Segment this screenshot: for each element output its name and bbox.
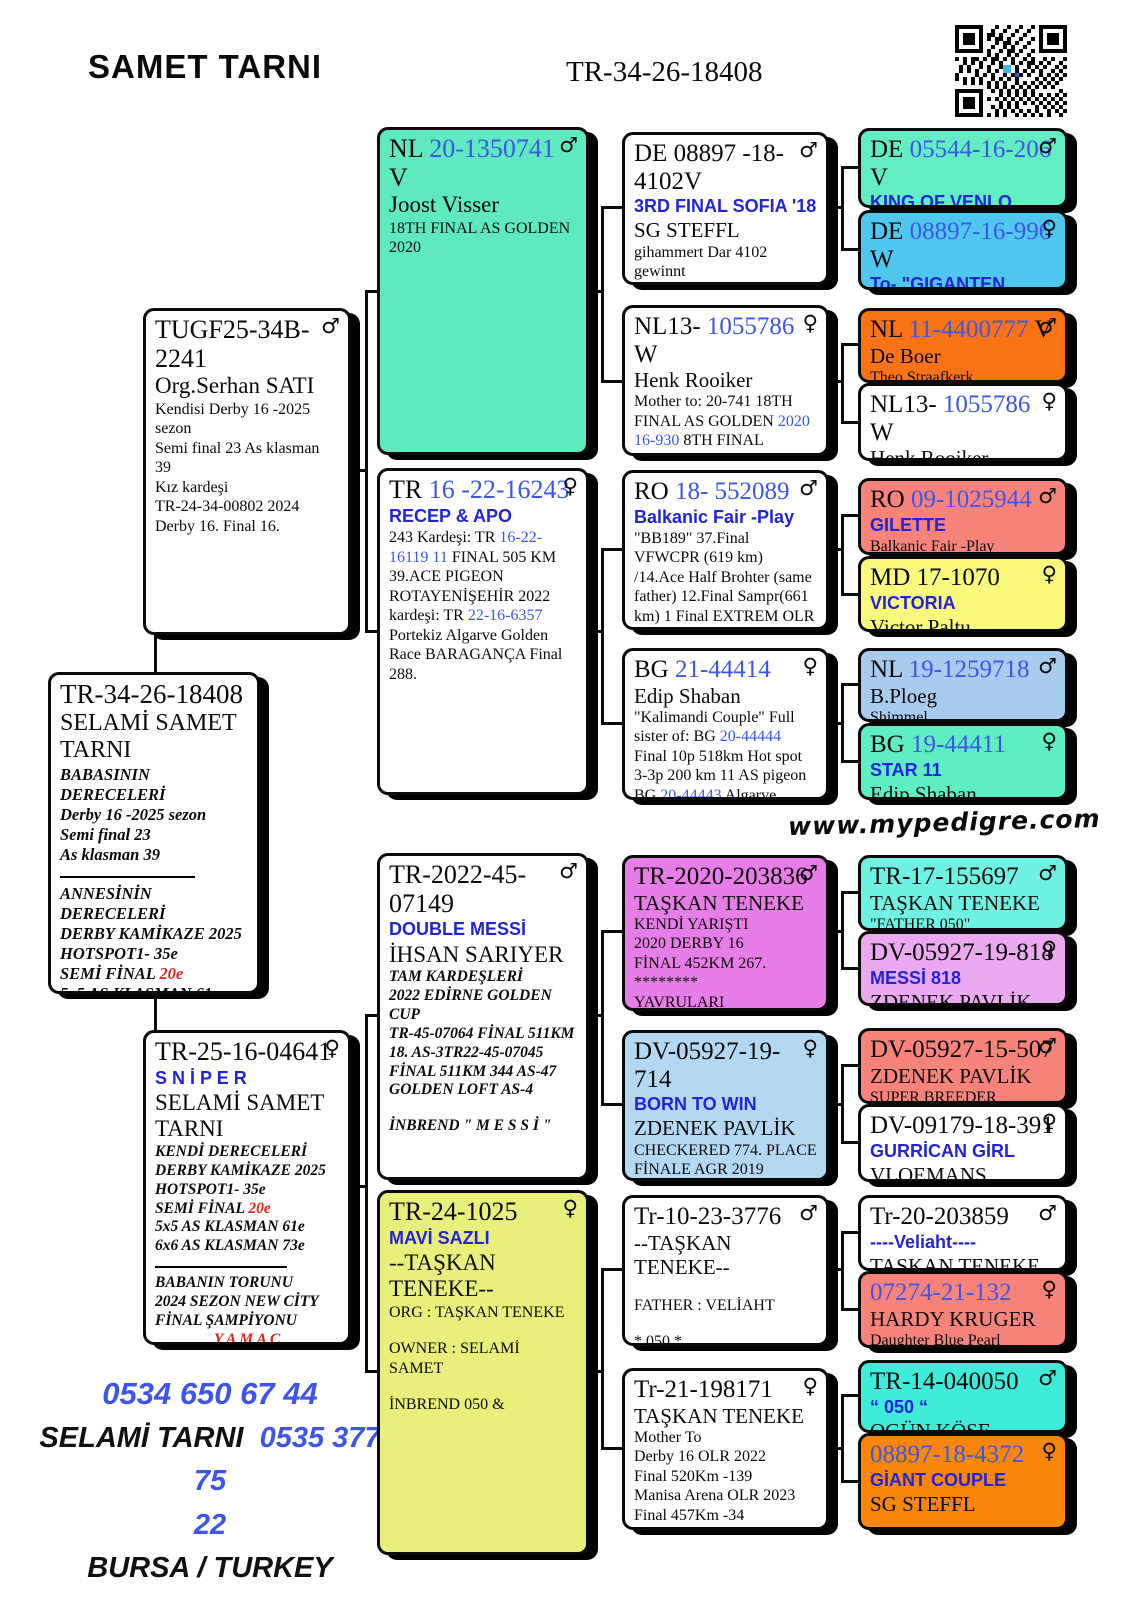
pedigree-box-de996: ♀DE 08897-16-996WTo- "GIGANTEN [858, 210, 1068, 290]
box-line: TR-24-34-00802 2024 [155, 497, 339, 517]
box-line: Mother to: 20-741 18TH FINAL AS GOLDEN 2… [634, 392, 817, 451]
box-line: KENDİ DERECELERİ [155, 1143, 339, 1162]
box-line: YAVRULARI [634, 993, 817, 1011]
male-icon: ♂ [799, 861, 818, 885]
connector-line [601, 206, 604, 383]
box-line: NL13- 1055786 [634, 313, 817, 341]
connector-line [844, 421, 858, 424]
box-line: 18TH FINAL AS GOLDEN [389, 219, 577, 239]
connector-line [844, 1308, 858, 1311]
pedigree-box-tr17: ♂TR-17-155697TAŞKAN TENEKE"FATHER 050" [858, 855, 1068, 931]
box-line: Y A M A Ç [155, 1331, 339, 1345]
female-icon: ♀ [563, 1196, 578, 1220]
box-line: TR-2020-203836 [634, 863, 817, 891]
box-line: SISTER TO: ANNE 51. [634, 1180, 817, 1181]
box-line: SEMİ FİNAL 20e [60, 964, 248, 984]
box-line: Tr-10-23-3776 [634, 1203, 817, 1231]
box-line: Org.Serhan SATI [155, 373, 339, 399]
male-icon: ♂ [799, 476, 818, 500]
box-line: * 050 * [634, 1332, 817, 1346]
box-line [389, 1378, 577, 1395]
box-line: "Kalimandi Couple" Full sister of: BG 20… [634, 708, 817, 800]
connector-line [841, 514, 844, 596]
box-line: As klasman 39 [60, 845, 248, 865]
connector-line [368, 1014, 377, 1017]
box-line: FİNAL ŞAMPİYONU [155, 1312, 339, 1331]
connector-line [844, 683, 858, 686]
box-line: TAŞKAN TENEKE [634, 1404, 817, 1428]
male-icon: ♂ [799, 138, 818, 162]
connector-line [844, 1480, 858, 1483]
connector-line [601, 548, 604, 725]
box-line: gihammert Dar 4102 gewinnt [634, 243, 817, 282]
box-line: MD 17-1070 [870, 564, 1056, 592]
box-line: CUP [389, 1006, 577, 1025]
pedigree-box-tr10: ♂Tr-10-23-3776--TAŞKANTENEKE--FATHER : V… [622, 1195, 829, 1346]
male-icon: ♂ [1038, 1201, 1057, 1225]
box-line: NL13- 1055786 [870, 391, 1056, 419]
connector-line [844, 514, 858, 517]
box-line: RECEP & APO [389, 505, 577, 528]
box-line: Manisa Arena OLR 2023 [634, 1486, 817, 1506]
box-line [155, 1266, 287, 1268]
box-line: TR-34-26-18408 [60, 680, 248, 710]
box-line: ******** [634, 973, 817, 993]
box-line: Kız kardeşi [155, 478, 339, 498]
box-line: DE 08897 -18- [634, 140, 817, 168]
box-line: MAVİ SAZLI [389, 1227, 577, 1250]
box-line: 2020 DERBY 16 [634, 934, 817, 954]
box-line: “ 050 “ [870, 1396, 1056, 1419]
connector-line [844, 166, 858, 169]
box-line: DERECELERİ [60, 904, 248, 924]
box-line: ----Veliaht---- [870, 1231, 1056, 1254]
box-line: SG STEFFL [870, 1492, 1056, 1516]
box-line: "BB189" 37.Final VFWCPR (619 km) /14.Ace… [634, 529, 817, 630]
box-line: SG STEFFL [634, 218, 817, 242]
box-line: ZDENEK PAVLİK [634, 1116, 817, 1140]
phone-number-2-cont: 22 [25, 1504, 395, 1548]
female-icon: ♀ [1042, 389, 1057, 413]
box-line: DV-05927-15-507 [870, 1036, 1056, 1064]
box-line: TR-17-155697 [870, 863, 1056, 891]
male-icon: ♂ [1038, 654, 1057, 678]
box-line: Derby 16. Final 16. [155, 517, 339, 537]
box-line: TR 16 -22-16243 [389, 476, 577, 505]
connector-line [352, 1185, 365, 1188]
female-icon: ♀ [1042, 1110, 1057, 1134]
box-line: HARDY KRUGER [870, 1307, 1056, 1331]
box-line: STAR 11 [870, 759, 1056, 782]
pedigree-page: SAMET TARNI TR-34-26-18408 www.mypedigre… [0, 0, 1131, 1600]
location-text: BURSA / TURKEY [25, 1547, 395, 1591]
phone-number-1: 0534 650 67 44 [25, 1372, 395, 1417]
pedigree-box-nl19: ♂NL 19-1259718B.PloegShimmel [858, 648, 1068, 722]
connector-line [604, 722, 622, 725]
box-line: GOLDEN LOFT AS-4 [389, 1081, 577, 1100]
box-line: ZDENEK PAVLİK [870, 990, 1056, 1006]
connector-line [841, 343, 844, 424]
connector-line [365, 290, 368, 633]
box-line: DERBY KAMİKAZE 2025 [60, 924, 248, 944]
box-line: KING OF VENLO [870, 191, 1056, 208]
pedigree-box-dv714: ♀DV-05927-19-714BORN TO WINZDENEK PAVLİK… [622, 1030, 829, 1181]
female-icon: ♀ [1042, 562, 1057, 586]
box-line: Theo Straafkerk [870, 368, 1056, 383]
connector-line [844, 967, 858, 970]
connector-line [365, 1014, 368, 1373]
box-line: BORN TO WIN [634, 1093, 817, 1116]
box-line: Final 457Km -34 [634, 1506, 817, 1526]
male-icon: ♂ [1038, 1366, 1057, 1390]
pedigree-box-nl20: ♂NL 20-1350741 VJoost Visser18TH FINAL A… [377, 127, 589, 455]
pedigree-box-nl13: ♀NL13- 1055786WHenk RooikerMother to: 20… [622, 305, 829, 456]
male-icon: ♂ [559, 859, 578, 883]
pedigree-box-dv507: ♂DV-05927-15-507ZDENEK PAVLİKSUPER BREED… [858, 1028, 1068, 1104]
pedigree-box-mother: ♀TR-25-16-04641S N İ P E RSELAMİ SAMET T… [143, 1030, 351, 1345]
female-icon: ♀ [803, 654, 818, 678]
box-line: B.Ploeg [870, 684, 1056, 708]
box-line: Derby 16 -2025 sezon [60, 805, 248, 825]
box-line: İNBREND 050 & [389, 1395, 577, 1415]
box-line: İHSAN SARIYER [389, 942, 577, 968]
box-line: TR-45-07064 FİNAL 511KM [389, 1025, 577, 1044]
box-line: 3RD FINAL SOFIA '18 [634, 195, 817, 218]
connector-line [604, 1268, 622, 1271]
pedigree-box-tr16: ♀TR 16 -22-16243RECEP & APO243 Kardeşi: … [377, 468, 589, 795]
pedigree-box-de4102: ♂DE 08897 -18-4102V3RD FINAL SOFIA '18SG… [622, 132, 829, 285]
box-line: FİNAL 452KM 267. [634, 954, 817, 974]
box-line: Henk Rooiker [870, 446, 1056, 461]
box-line: Balkanic Fair -Play [870, 537, 1056, 555]
male-icon: ♂ [1038, 484, 1057, 508]
female-icon: ♀ [1042, 1439, 1057, 1463]
female-icon: ♀ [1042, 1277, 1057, 1301]
box-line: 4102V [634, 168, 817, 196]
connector-line [844, 891, 858, 894]
box-line: 6x6 AS KLASMAN 73e [155, 1237, 339, 1256]
box-line: HOTSPOT1- 35e [155, 1181, 339, 1200]
box-line: TAŞKAN TENEKE [870, 1254, 1056, 1271]
female-icon: ♀ [1042, 937, 1057, 961]
box-line: 5x5 AS KLASMAN 61e [155, 1218, 339, 1237]
box-line: BABANIN TORUNU [155, 1274, 339, 1293]
owner-line: SELAMİ TARNI 0535 377 75 [25, 1417, 395, 1504]
connector-line [844, 343, 858, 346]
pedigree-box-bg21: ♀BG 21-44414Edip Shaban"Kalimandi Couple… [622, 648, 829, 800]
female-icon: ♀ [1042, 729, 1057, 753]
box-line: W [634, 341, 817, 369]
pedigree-box-subject: TR-34-26-18408SELAMİ SAMET TARNIBABASINI… [48, 672, 260, 994]
box-line: NL 11-4400777 V [870, 316, 1056, 344]
box-line: Edip Shaban [870, 782, 1056, 800]
pedigree-box-nl11: ♂NL 11-4400777 VDe BoerTheo Straafkerk [858, 308, 1068, 383]
box-line: SEMİ FİNAL 20e [155, 1200, 339, 1219]
box-line: Daughter Blue Pearl [870, 1331, 1056, 1348]
box-line [634, 1315, 817, 1332]
pedigree-box-de206: ♂DE 05544-16-206VKING OF VENLO [858, 128, 1068, 208]
connector-line [841, 891, 844, 970]
box-line: ZDENEK PAVLİK [870, 1064, 1056, 1088]
connector-line [604, 380, 622, 383]
male-icon: ♂ [321, 314, 340, 338]
box-line: FİNAL 511KM 344 AS-47 [389, 1063, 577, 1082]
pedigree-box-ro18: ♂RO 18- 552089Balkanic Fair -Play"BB189"… [622, 470, 829, 630]
box-line: TUGF25-34B-2241 [155, 316, 339, 373]
box-line: V [870, 164, 1056, 192]
connector-line [604, 1103, 622, 1106]
box-line: FATHER : VELİAHT [634, 1296, 817, 1316]
connector-line [841, 1394, 844, 1483]
box-line: Semi final 23 [60, 825, 248, 845]
box-line: S N İ P E R [155, 1067, 339, 1090]
pedigree-box-father: ♂TUGF25-34B-2241Org.Serhan SATIKendisi D… [143, 308, 351, 635]
box-line: NL 20-1350741 V [389, 135, 577, 192]
box-line: "FATHER 050" [870, 915, 1056, 931]
female-icon: ♀ [563, 474, 578, 498]
box-line: 243 Kardeşi: TR 16-22-16119 11 FINAL 505… [389, 528, 577, 684]
box-line: SUPER BREEDER [870, 1088, 1056, 1104]
box-line: Henk Rooiker [634, 368, 817, 392]
footer-contact: 0534 650 67 44 SELAMİ TARNI 0535 377 75 … [25, 1372, 395, 1591]
box-line: TAŞKAN TENEKE [634, 891, 817, 915]
box-line: CHECKERED 774. PLACE [634, 1141, 817, 1161]
box-line: BABASININ DERECELERİ [60, 765, 248, 805]
connector-line [844, 760, 858, 763]
male-icon: ♂ [1038, 861, 1057, 885]
box-line: FİNALE AGR 2019 [634, 1160, 817, 1180]
box-line: RO 09-1025944 [870, 486, 1056, 514]
pedigree-box-ro09: ♂RO 09-1025944GILETTEBalkanic Fair -Play [858, 478, 1068, 555]
pedigree-box-dv818: ♀DV-05927-19-818MESSİ 818ZDENEK PAVLİK [858, 931, 1068, 1006]
box-line [389, 1322, 577, 1339]
box-line: Tr-20-203859 [870, 1203, 1056, 1231]
box-line: 2020 [389, 238, 577, 258]
box-line: 08897-18-4372 [870, 1441, 1056, 1469]
connector-line [604, 548, 622, 551]
female-icon: ♀ [803, 1374, 818, 1398]
box-line: DOUBLE MESSİ [389, 918, 577, 941]
connector-line [368, 290, 377, 293]
box-line: Mother To [634, 1428, 817, 1448]
box-line: MESSİ 818 [870, 967, 1056, 990]
box-line: GILETTE [870, 514, 1056, 537]
box-line: TR-25-16-04641 [155, 1038, 339, 1067]
box-line: OWNER : SELAMİ SAMET [389, 1339, 577, 1378]
box-line: 2022 EDİRNE GOLDEN [389, 987, 577, 1006]
female-icon: ♀ [803, 311, 818, 335]
box-line: SELAMİ SAMET TARNI [60, 710, 248, 765]
box-line: DV-09179-18-391 [870, 1112, 1056, 1140]
connector-line [352, 469, 365, 472]
box-line [634, 1279, 817, 1296]
box-line: 07274-21-132 [870, 1279, 1056, 1307]
box-line: DV-05927-19-714 [634, 1038, 817, 1093]
connector-line [841, 166, 844, 251]
pedigree-tree: TR-34-26-18408SELAMİ SAMET TARNIBABASINI… [0, 0, 1131, 1600]
box-line: BG 19-44411 [870, 731, 1056, 759]
box-line: TAŞKAN TENEKE [870, 891, 1056, 915]
female-icon: ♀ [325, 1036, 340, 1060]
female-icon: ♀ [1042, 216, 1057, 240]
connector-line [844, 1064, 858, 1067]
box-line: 5x5 AS KLASMAN 61e [60, 984, 248, 994]
box-line: GURRİCAN GİRL [870, 1140, 1056, 1163]
box-line: GİANT COUPLE [870, 1469, 1056, 1492]
pedigree-box-tr2020: ♂TR-2020-203836TAŞKAN TENEKEKENDİ YARIŞT… [622, 855, 829, 1011]
box-line: To- "GIGANTEN [870, 273, 1056, 290]
pedigree-box-tr21: ♀Tr-21-198171TAŞKAN TENEKEMother ToDerby… [622, 1368, 829, 1530]
box-line: Kendisi Derby 16 -2025 [155, 400, 339, 420]
box-line: W [870, 246, 1056, 274]
connector-line [844, 593, 858, 596]
owner-name: SELAMİ TARNI [39, 1422, 243, 1454]
connector-line [844, 1141, 858, 1144]
box-line: Semi final 23 As klasman 39 [155, 439, 339, 478]
box-line: DV-05927-19-818 [870, 939, 1056, 967]
pedigree-box-tr2022: ♂TR-2022-45-07149DOUBLE MESSİİHSAN SARIY… [377, 853, 589, 1180]
box-line: Edip Shaban [634, 684, 817, 708]
male-icon: ♂ [799, 1201, 818, 1225]
box-line: 2024 SEZON NEW CİTY [155, 1293, 339, 1312]
box-line: Final 520Km -139 [634, 1467, 817, 1487]
box-line: VLOEMANS [870, 1163, 1056, 1182]
box-line: Shimmel [870, 708, 1056, 722]
box-line: sezon [155, 419, 339, 439]
box-line: TENEKE-- [389, 1276, 577, 1302]
box-line: De Boer [870, 344, 1056, 368]
connector-line [841, 1064, 844, 1144]
box-line: DERBY KAMİKAZE 2025 [155, 1162, 339, 1181]
box-line: TR-14-040050 [870, 1368, 1056, 1396]
connector-line [604, 930, 622, 933]
box-line: ANNESİNİN [60, 884, 248, 904]
pedigree-box-nl13b: ♀NL13- 1055786WHenk Rooiker [858, 383, 1068, 461]
connector-line [154, 635, 157, 672]
pedigree-box-dv391: ♀DV-09179-18-391GURRİCAN GİRLVLOEMANS [858, 1104, 1068, 1182]
pedigree-box-tr4372: ♀08897-18-4372GİANT COUPLESG STEFFL [858, 1433, 1068, 1530]
connector-line [368, 1370, 377, 1373]
male-icon: ♂ [1038, 1034, 1057, 1058]
box-line: İNBREND " M E S S İ " [389, 1117, 577, 1136]
box-line: NL 19-1259718 [870, 656, 1056, 684]
box-line: OGÜN KÖSE [870, 1419, 1056, 1433]
connector-line [604, 1447, 622, 1450]
connector-line [844, 1394, 858, 1397]
box-line: W [870, 419, 1056, 447]
connector-line [154, 994, 157, 1030]
pedigree-box-tr24: ♀TR-24-1025MAVİ SAZLI--TAŞKANTENEKE--ORG… [377, 1190, 589, 1555]
box-line: DE 08897-16-996 [870, 218, 1056, 246]
box-line: VICTORIA [870, 592, 1056, 615]
box-line: Joost Visser [389, 192, 577, 218]
box-line: TR-2022-45-07149 [389, 861, 577, 918]
pedigree-box-bg19: ♀BG 19-44411STAR 11Edip Shaban [858, 723, 1068, 800]
male-icon: ♂ [559, 133, 578, 157]
box-line: --TAŞKAN [634, 1231, 817, 1255]
box-line: ORG : TAŞKAN TENEKE [389, 1303, 577, 1323]
box-line: Tr-21-198171 [634, 1376, 817, 1404]
male-icon: ♂ [1038, 134, 1057, 158]
box-line [389, 1100, 577, 1117]
box-line: SELAMİ SAMET TARNI [155, 1090, 339, 1143]
box-line: TAM KARDEŞLERİ [389, 968, 577, 987]
connector-line [841, 1231, 844, 1311]
connector-line [841, 683, 844, 763]
connector-line [604, 206, 622, 209]
connector-line [368, 630, 377, 633]
box-line: Balkanic Fair -Play [634, 506, 817, 529]
box-line: TENEKE-- [634, 1255, 817, 1279]
connector-line [601, 930, 604, 1106]
pedigree-box-tr20b: ♂Tr-20-203859----Veliaht----TAŞKAN TENEK… [858, 1195, 1068, 1271]
male-icon: ♂ [1038, 314, 1057, 338]
box-line: Victor Paltu [870, 615, 1056, 632]
pedigree-box-md17: ♀MD 17-1070VICTORIAVictor Paltu [858, 556, 1068, 632]
box-line: 18. AS-3TR22-45-07045 [389, 1044, 577, 1063]
pedigree-box-tr07274: ♀07274-21-132HARDY KRUGERDaughter Blue P… [858, 1271, 1068, 1348]
box-line: RO 18- 552089 [634, 478, 817, 506]
pedigree-box-tr14: ♂TR-14-040050“ 050 “OGÜN KÖSE [858, 1360, 1068, 1433]
box-line: KENDİ YARIŞTI [634, 915, 817, 935]
connector-line [844, 248, 858, 251]
box-line: BG 21-44414 [634, 656, 817, 684]
female-icon: ♀ [803, 1036, 818, 1060]
box-line: HOTSPOT1- 35e [60, 944, 248, 964]
box-line: Derby 16 OLR 2022 [634, 1447, 817, 1467]
connector-line [601, 1268, 604, 1450]
box-line: DE 05544-16-206 [870, 136, 1056, 164]
box-line: TR-24-1025 [389, 1198, 577, 1227]
box-line: 3.Final Derby Sofia FATHER [634, 282, 817, 285]
connector-line [844, 1231, 858, 1234]
box-line [60, 876, 195, 878]
box-line: --TAŞKAN [389, 1250, 577, 1276]
